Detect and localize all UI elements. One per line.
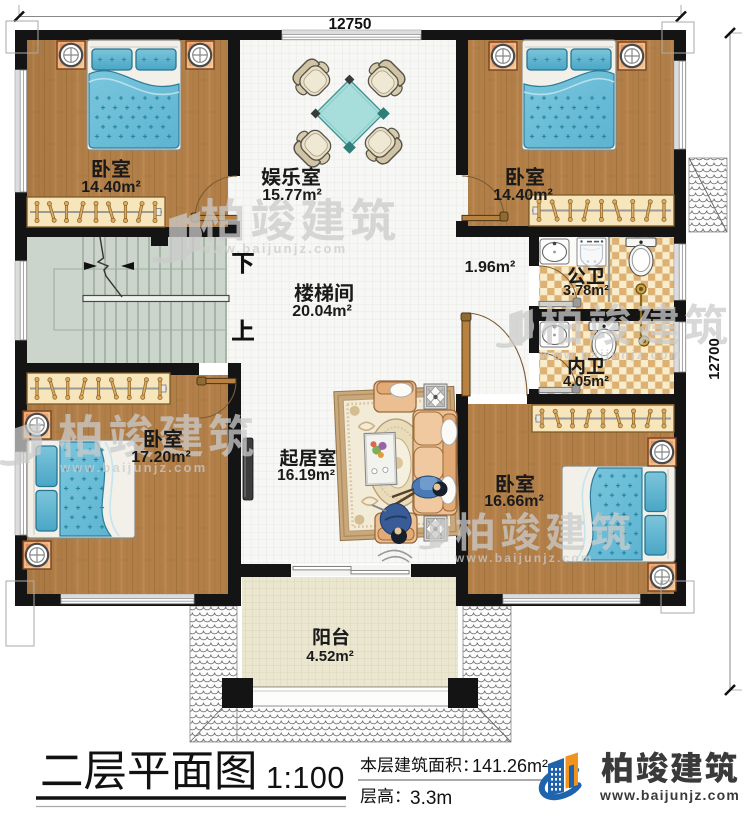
svg-text:12750: 12750 bbox=[328, 16, 371, 33]
svg-text:16.66m²: 16.66m² bbox=[484, 493, 544, 510]
svg-text:www.baijunjz.com: www.baijunjz.com bbox=[539, 348, 683, 362]
svg-text:15.77m²: 15.77m² bbox=[262, 187, 322, 204]
svg-text:www.baijunjz.com: www.baijunjz.com bbox=[454, 551, 594, 565]
svg-text:17.20m²: 17.20m² bbox=[131, 449, 191, 466]
svg-text:www.baijunjz.com: www.baijunjz.com bbox=[599, 787, 740, 803]
svg-text:12700: 12700 bbox=[706, 338, 723, 380]
svg-text:16.19m²: 16.19m² bbox=[277, 467, 335, 484]
svg-text:1.96m²: 1.96m² bbox=[465, 259, 516, 276]
svg-text:14.40m²: 14.40m² bbox=[493, 187, 553, 204]
svg-text:www.baijunjz.com: www.baijunjz.com bbox=[199, 241, 347, 256]
svg-text:3.78m²: 3.78m² bbox=[563, 283, 609, 299]
svg-text:1:100: 1:100 bbox=[266, 761, 345, 795]
svg-text:141.26m²: 141.26m² bbox=[472, 756, 548, 776]
svg-text:20.04m²: 20.04m² bbox=[292, 303, 352, 320]
svg-text:14.40m²: 14.40m² bbox=[81, 179, 141, 196]
svg-text:4.05m²: 4.05m² bbox=[563, 374, 609, 390]
svg-text:4.52m²: 4.52m² bbox=[306, 648, 354, 665]
svg-text:3.3m: 3.3m bbox=[410, 788, 452, 809]
